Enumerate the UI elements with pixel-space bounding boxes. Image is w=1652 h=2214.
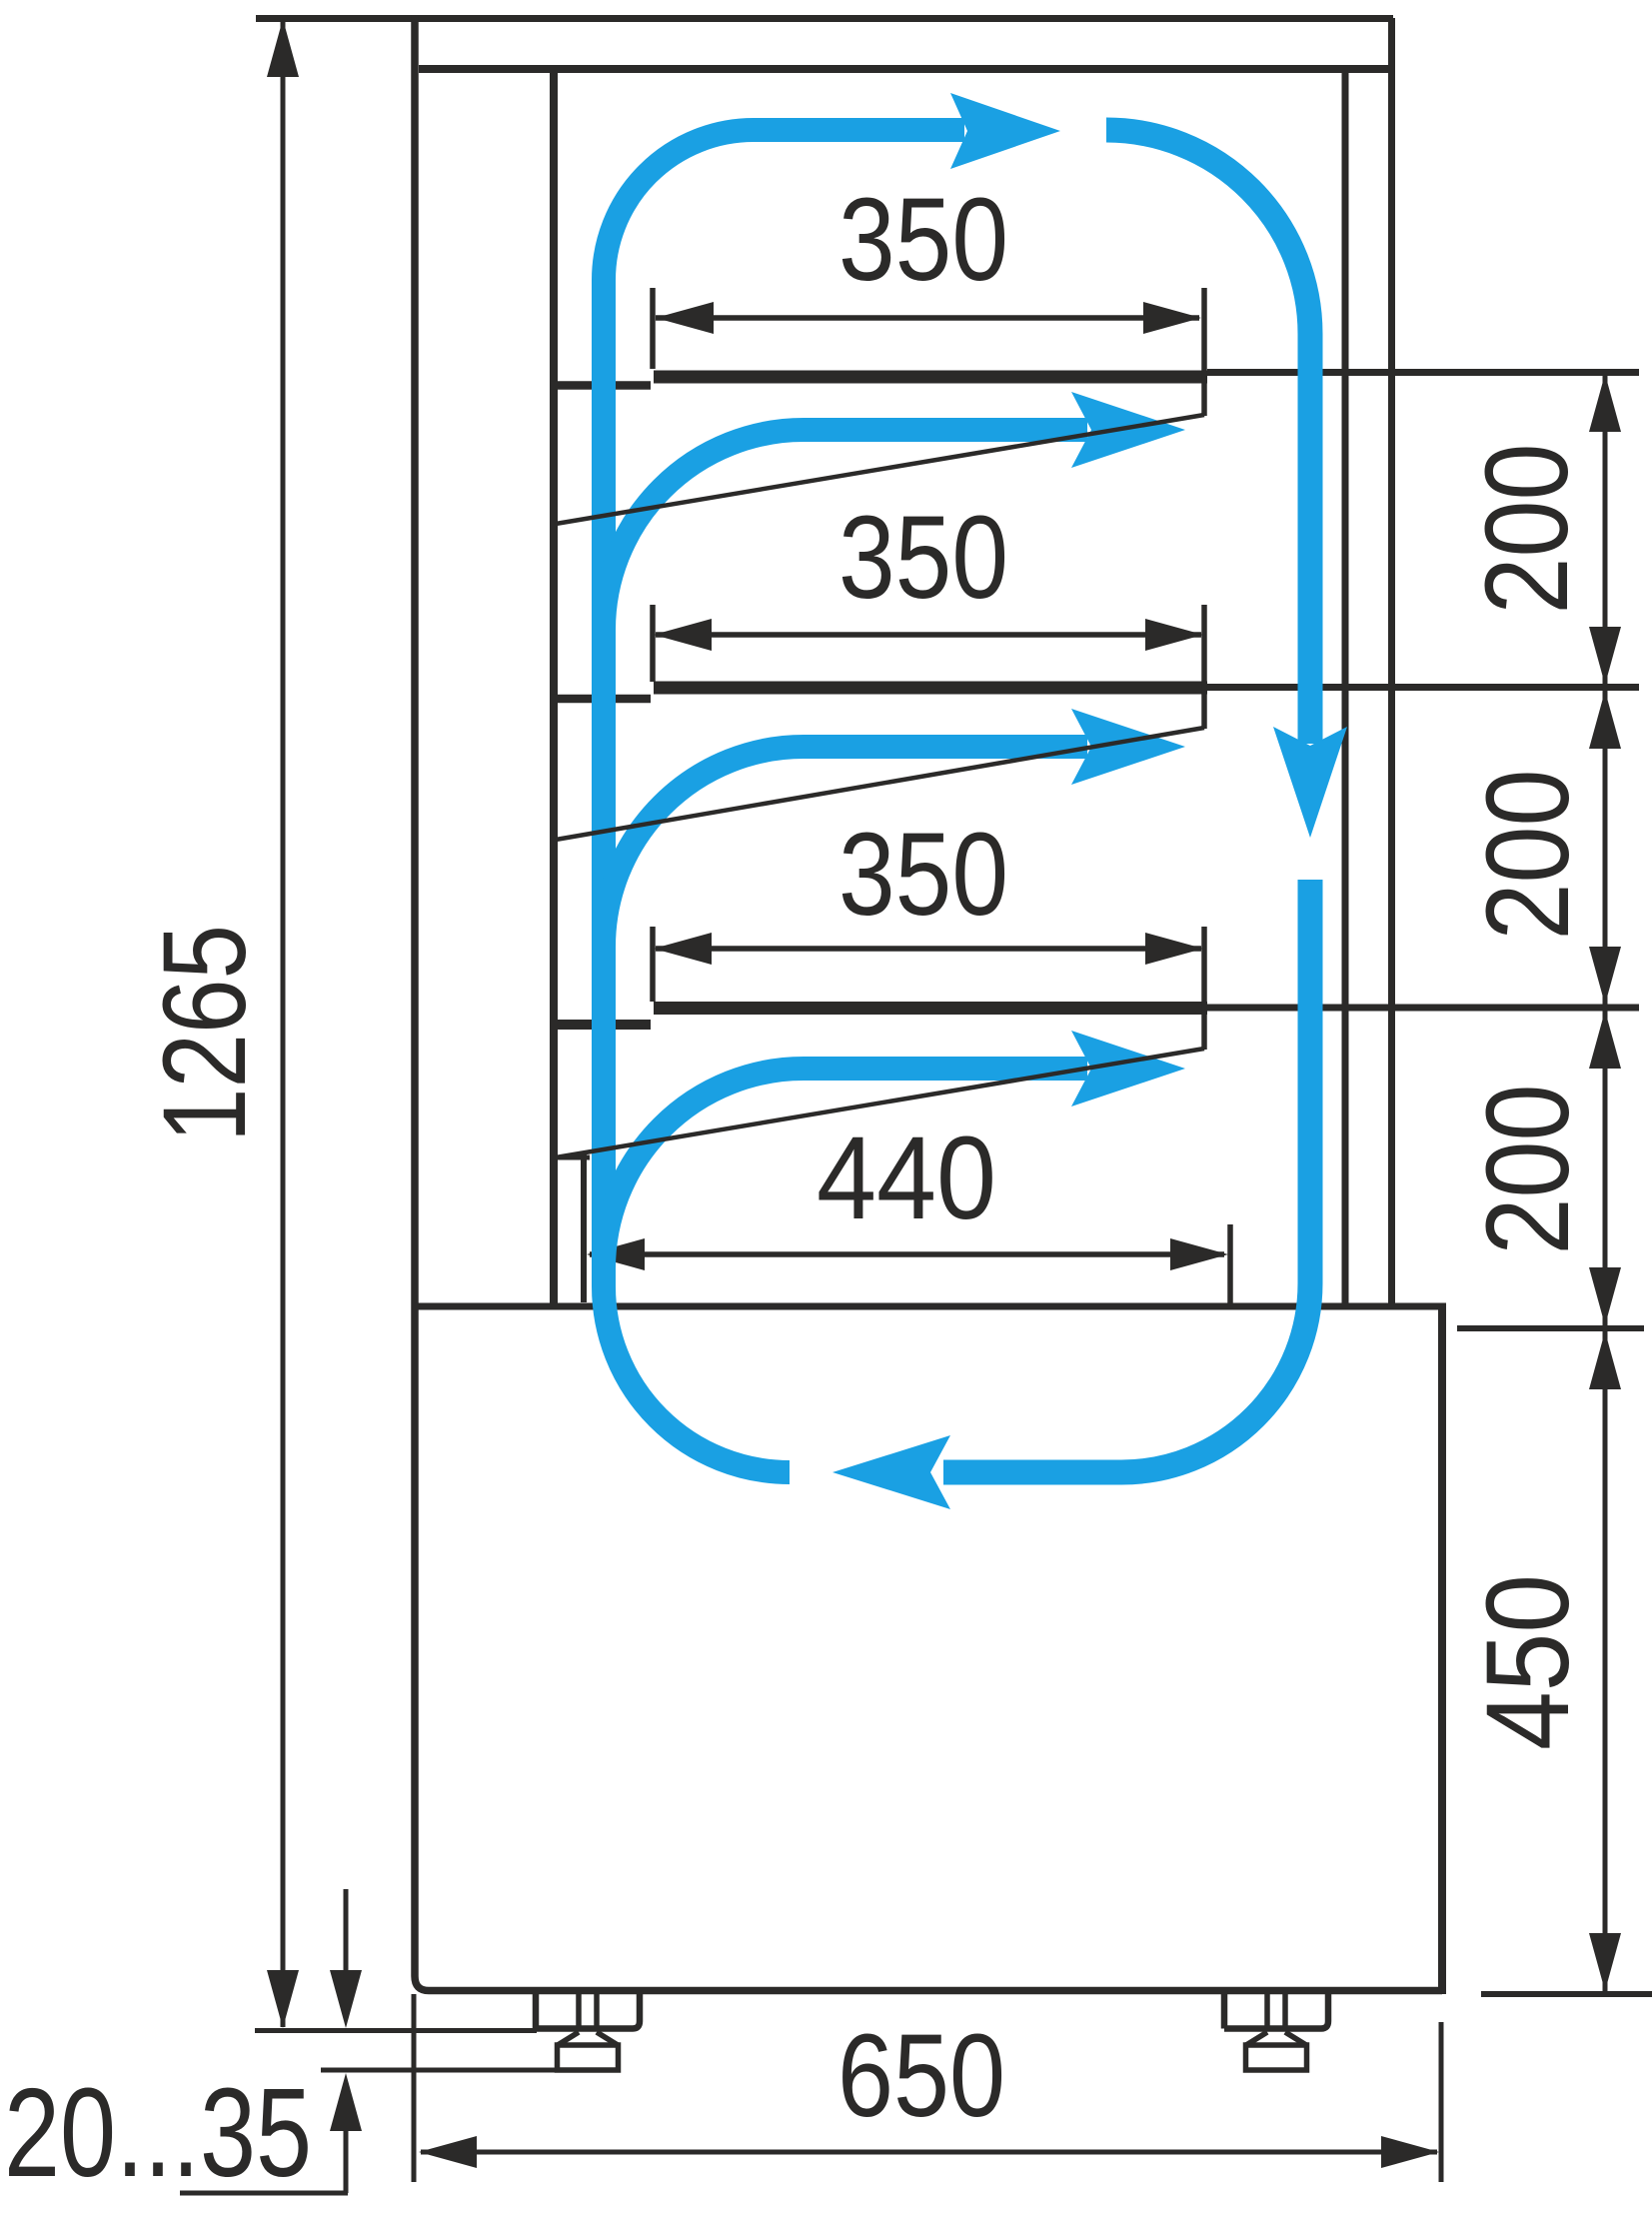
- svg-text:450: 450: [1462, 1574, 1594, 1750]
- svg-text:350: 350: [838, 174, 1008, 306]
- svg-text:20...35: 20...35: [4, 2062, 312, 2203]
- svg-text:200: 200: [1461, 444, 1593, 615]
- svg-text:350: 350: [838, 809, 1008, 941]
- svg-text:350: 350: [838, 492, 1008, 624]
- svg-text:200: 200: [1462, 770, 1594, 941]
- svg-text:200: 200: [1462, 1085, 1594, 1255]
- svg-text:440: 440: [817, 1112, 996, 1244]
- svg-text:1265: 1265: [139, 925, 271, 1142]
- svg-text:650: 650: [837, 2010, 1005, 2142]
